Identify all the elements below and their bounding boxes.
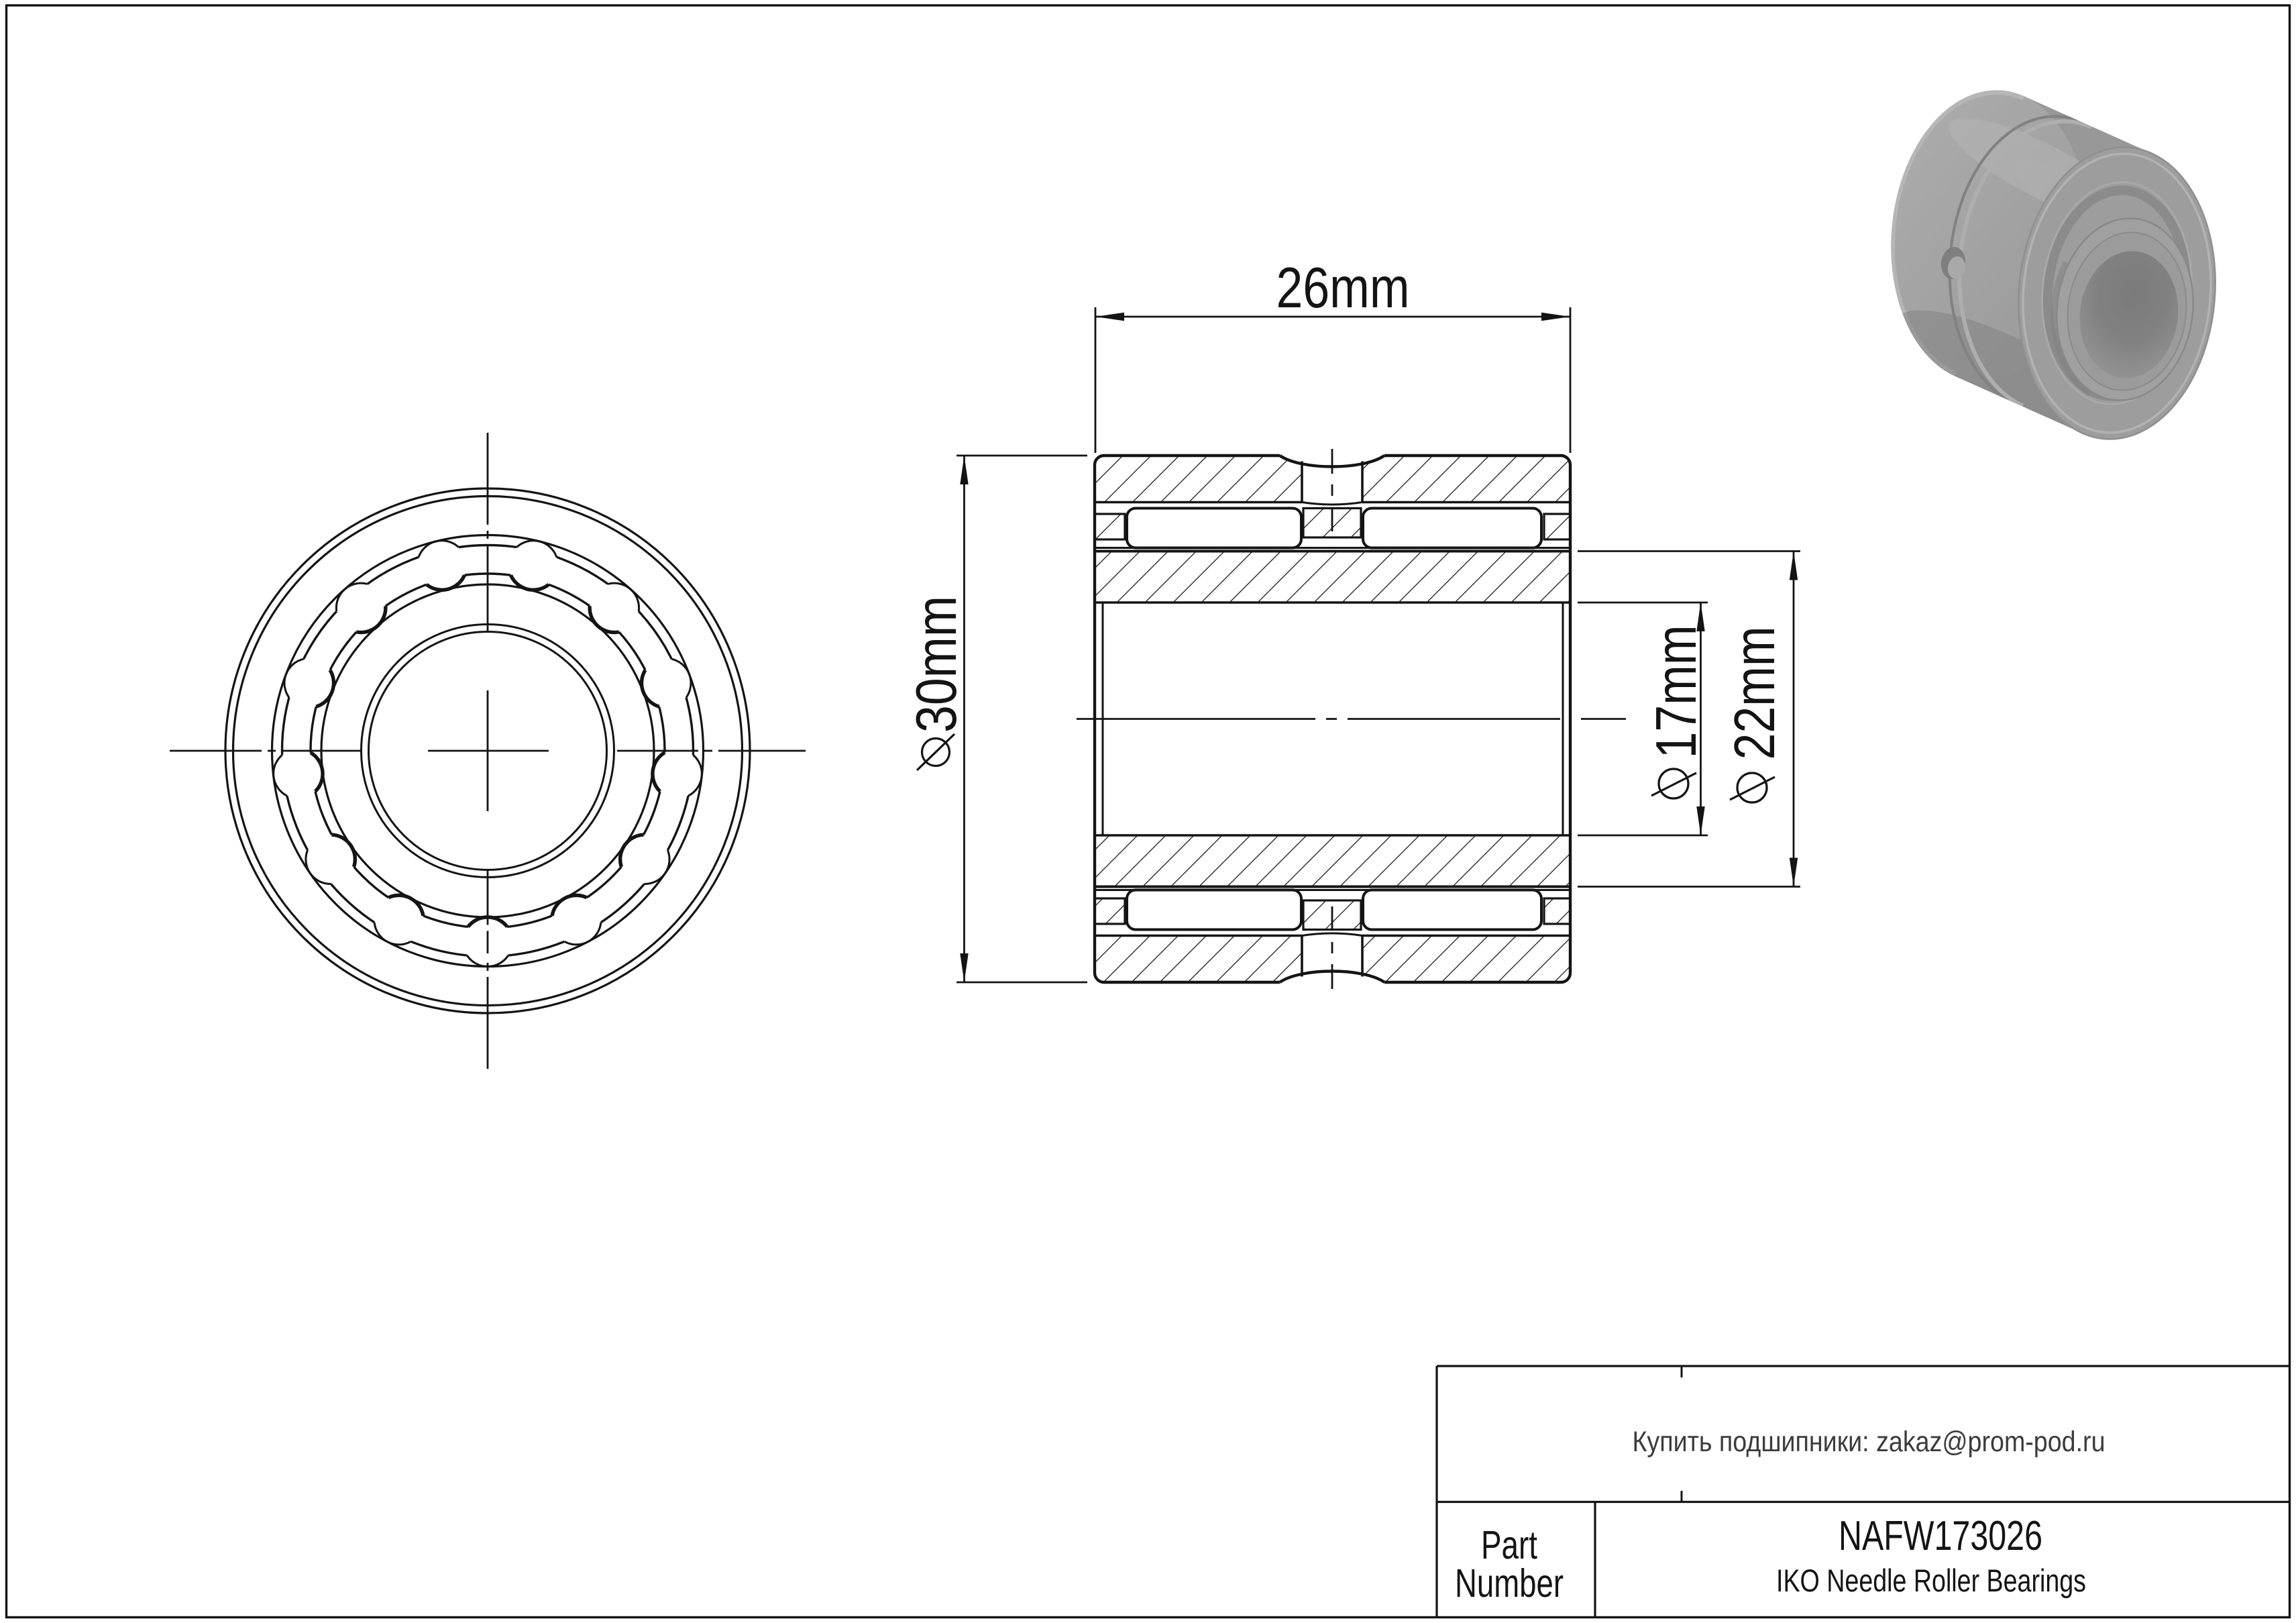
svg-text:17mm: 17mm xyxy=(1645,625,1708,759)
svg-text:IKO Needle Roller Bearings: IKO Needle Roller Bearings xyxy=(1776,1563,2086,1598)
svg-text:Купить подшипники: zakaz@prom-: Купить подшипники: zakaz@prom-pod.ru xyxy=(1633,1426,2106,1458)
svg-text:NAFW173026: NAFW173026 xyxy=(1839,1513,2042,1559)
svg-text:30mm: 30mm xyxy=(905,596,969,733)
svg-text:22mm: 22mm xyxy=(1723,627,1787,760)
svg-text:Number: Number xyxy=(1455,1561,1564,1606)
svg-text:26mm: 26mm xyxy=(1276,256,1410,320)
